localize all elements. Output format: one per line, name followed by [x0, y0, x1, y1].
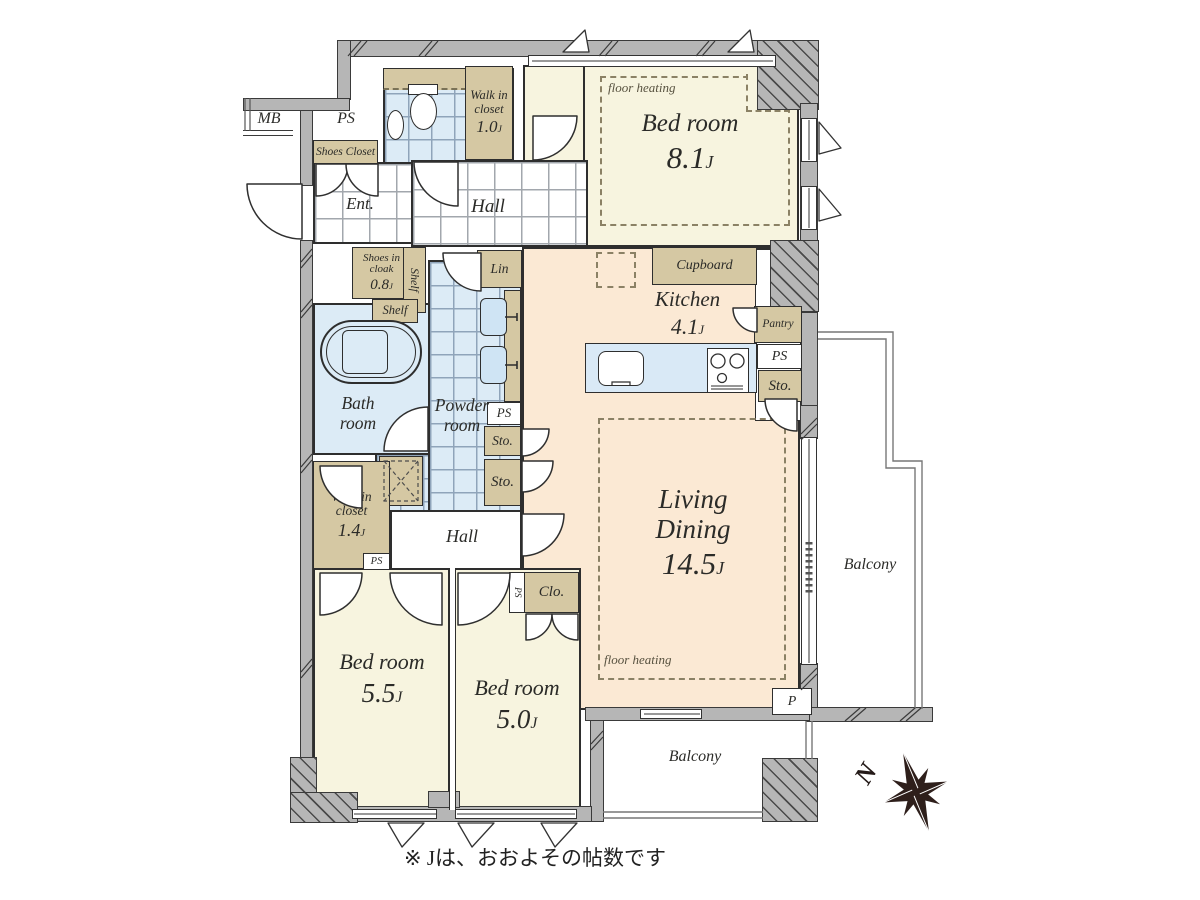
door-arc-bedroom55-right	[390, 573, 442, 625]
window-flag-top-2	[728, 30, 754, 52]
washing-machine-mark	[384, 461, 418, 501]
door-arc-front	[247, 184, 302, 239]
door-arc-bedroom50	[458, 573, 510, 625]
floor-plan: floor heating floor heating Shoes Closet…	[0, 0, 1200, 900]
door-arc-pantry	[733, 308, 757, 332]
door-arc-closet-right	[552, 614, 578, 640]
door-arc-toilet	[414, 162, 458, 206]
window-flag-bottom-1	[388, 823, 424, 847]
door-arc-living-entry	[765, 399, 797, 431]
door-arc-bedroom-main	[533, 116, 577, 160]
door-arc-closet-left	[526, 614, 552, 640]
window-flag-right-2	[819, 189, 841, 221]
door-arc-powder	[443, 253, 481, 291]
balcony-right-outline-inner	[818, 339, 915, 709]
door-arc-wic-lower	[320, 466, 362, 508]
balcony-right-outline	[818, 332, 922, 709]
door-arc-hall-living	[522, 514, 564, 556]
compass-rose	[867, 740, 966, 843]
door-arc-storage-lower	[522, 461, 553, 492]
door-arc-shoes-left	[316, 164, 348, 196]
door-arc-storage-upper	[522, 429, 549, 456]
cooktop-burners	[711, 354, 744, 389]
meterbox-left-ticks	[245, 98, 250, 131]
north-label: N	[848, 757, 884, 790]
window-flag-bottom-2	[458, 823, 494, 847]
door-arc-shoes-right	[346, 164, 378, 196]
plan-overlay: N	[0, 0, 1200, 900]
balcony-bottom-outline	[603, 721, 812, 818]
vanity-faucets	[505, 313, 517, 369]
door-arc-bath	[384, 407, 428, 451]
window-flag-top-1	[563, 30, 589, 52]
window-flag-right-1	[819, 122, 841, 154]
kitchen-sink-notch	[612, 382, 630, 386]
window-flag-bottom-3	[541, 823, 577, 847]
door-arc-bedroom55-left	[320, 573, 362, 615]
